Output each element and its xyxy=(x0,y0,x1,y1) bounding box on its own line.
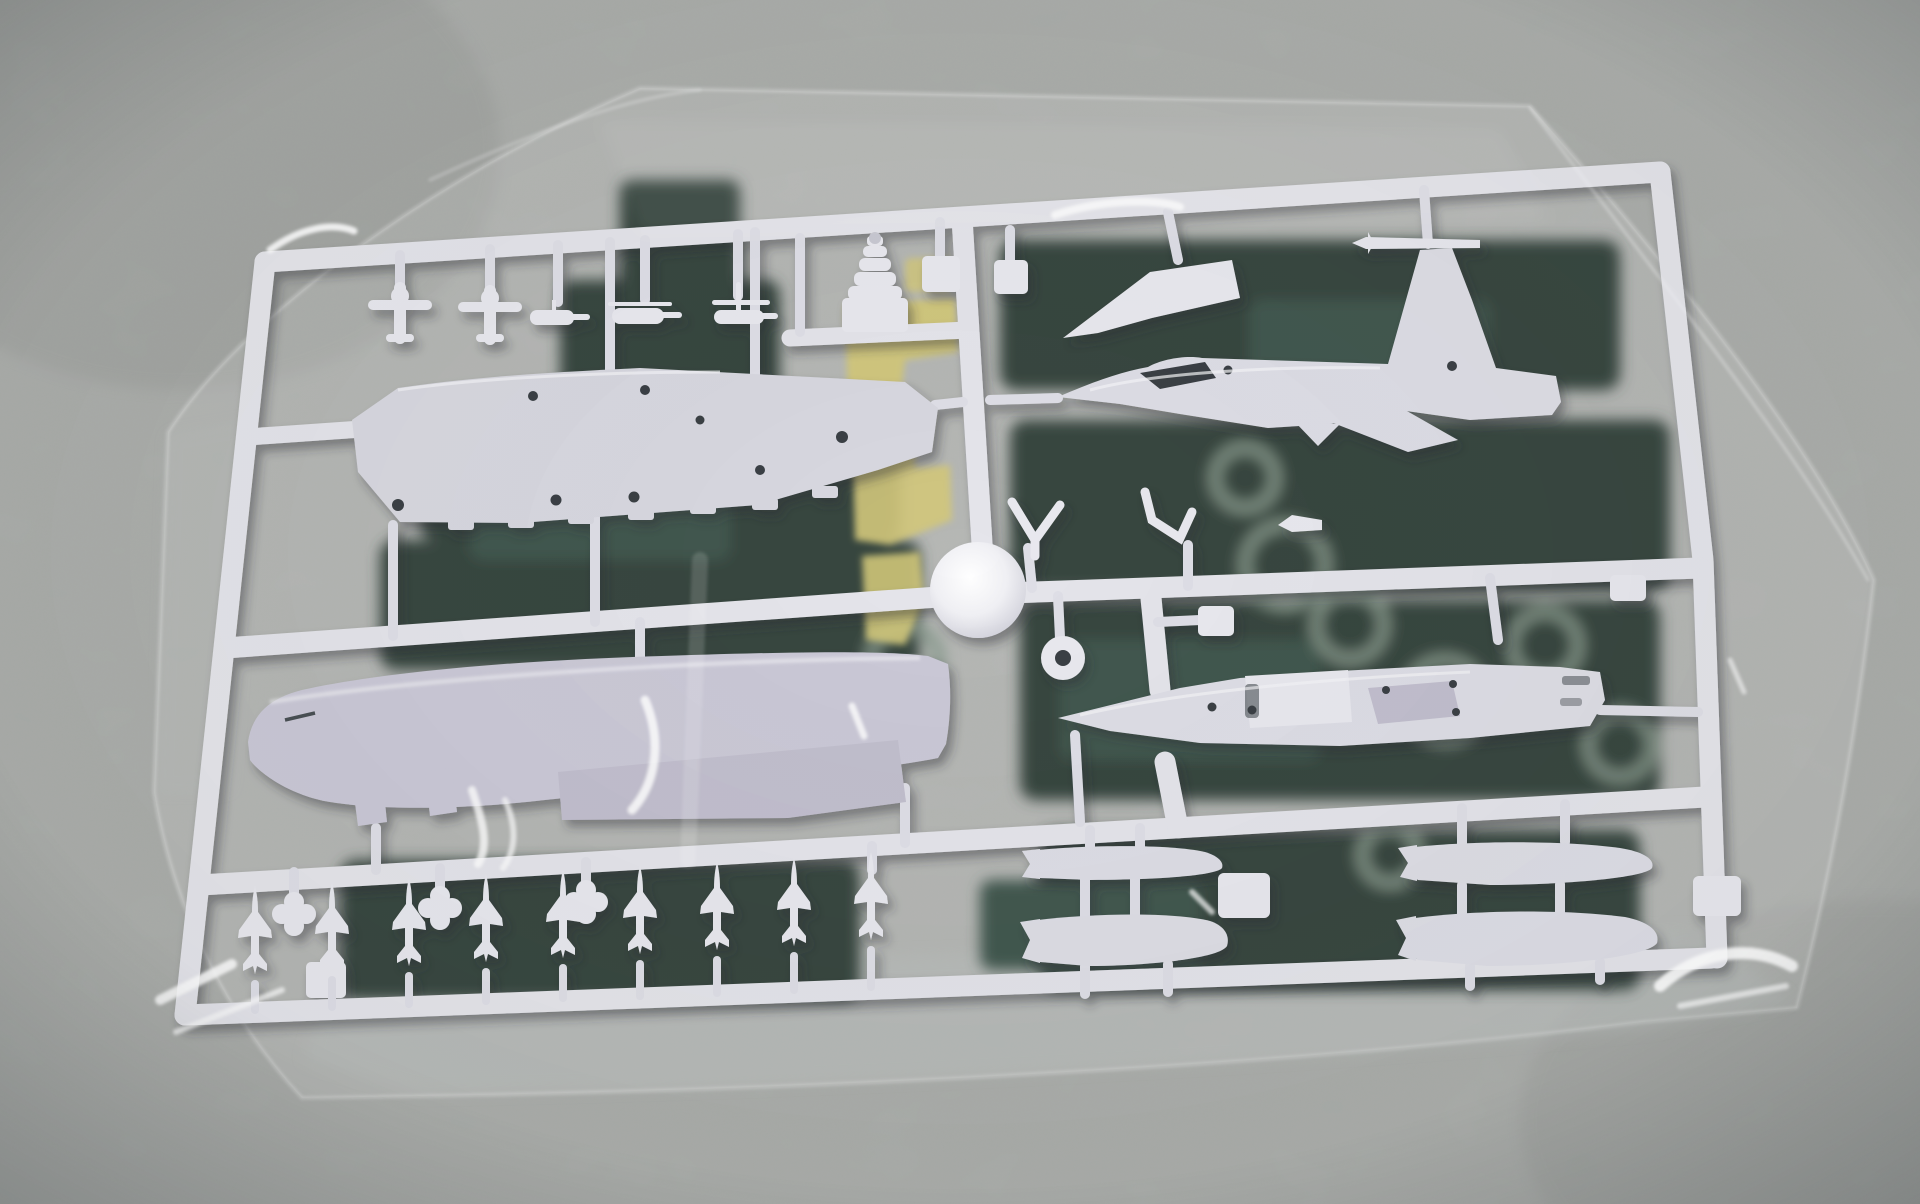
photo-stage: Photograph of a sealed clear plastic bag… xyxy=(0,0,1920,1204)
model-kit-photo xyxy=(0,0,1920,1204)
photo-vignette xyxy=(0,0,1920,1204)
